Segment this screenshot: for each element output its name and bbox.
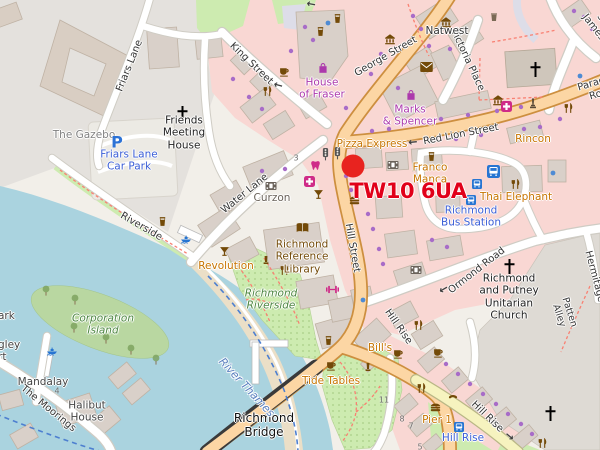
map-base (0, 0, 600, 450)
cinema-icon (388, 161, 399, 169)
bus-stop-icon (472, 179, 482, 189)
pharmacy-icon (304, 176, 315, 187)
pub-icon (326, 336, 332, 345)
pub-icon (160, 217, 166, 226)
map-canvas[interactable]: The Gazebo Friars Lane Friends Meeting H… (0, 0, 600, 450)
fast-food-icon (431, 404, 440, 412)
post-office-icon (420, 62, 433, 72)
cinema-icon (411, 266, 422, 274)
bus-station-icon (487, 165, 500, 178)
bus-stop-icon (466, 195, 476, 205)
pub-icon (429, 152, 435, 161)
pub-icon (335, 14, 341, 23)
bus-stop-icon (454, 422, 464, 432)
cinema-icon (266, 182, 277, 190)
postcode-label: TW10 6UA (349, 179, 466, 203)
library-book-icon (297, 223, 309, 232)
pub-icon (318, 27, 324, 36)
pharmacy-icon (501, 101, 512, 112)
location-marker[interactable] (342, 155, 365, 178)
